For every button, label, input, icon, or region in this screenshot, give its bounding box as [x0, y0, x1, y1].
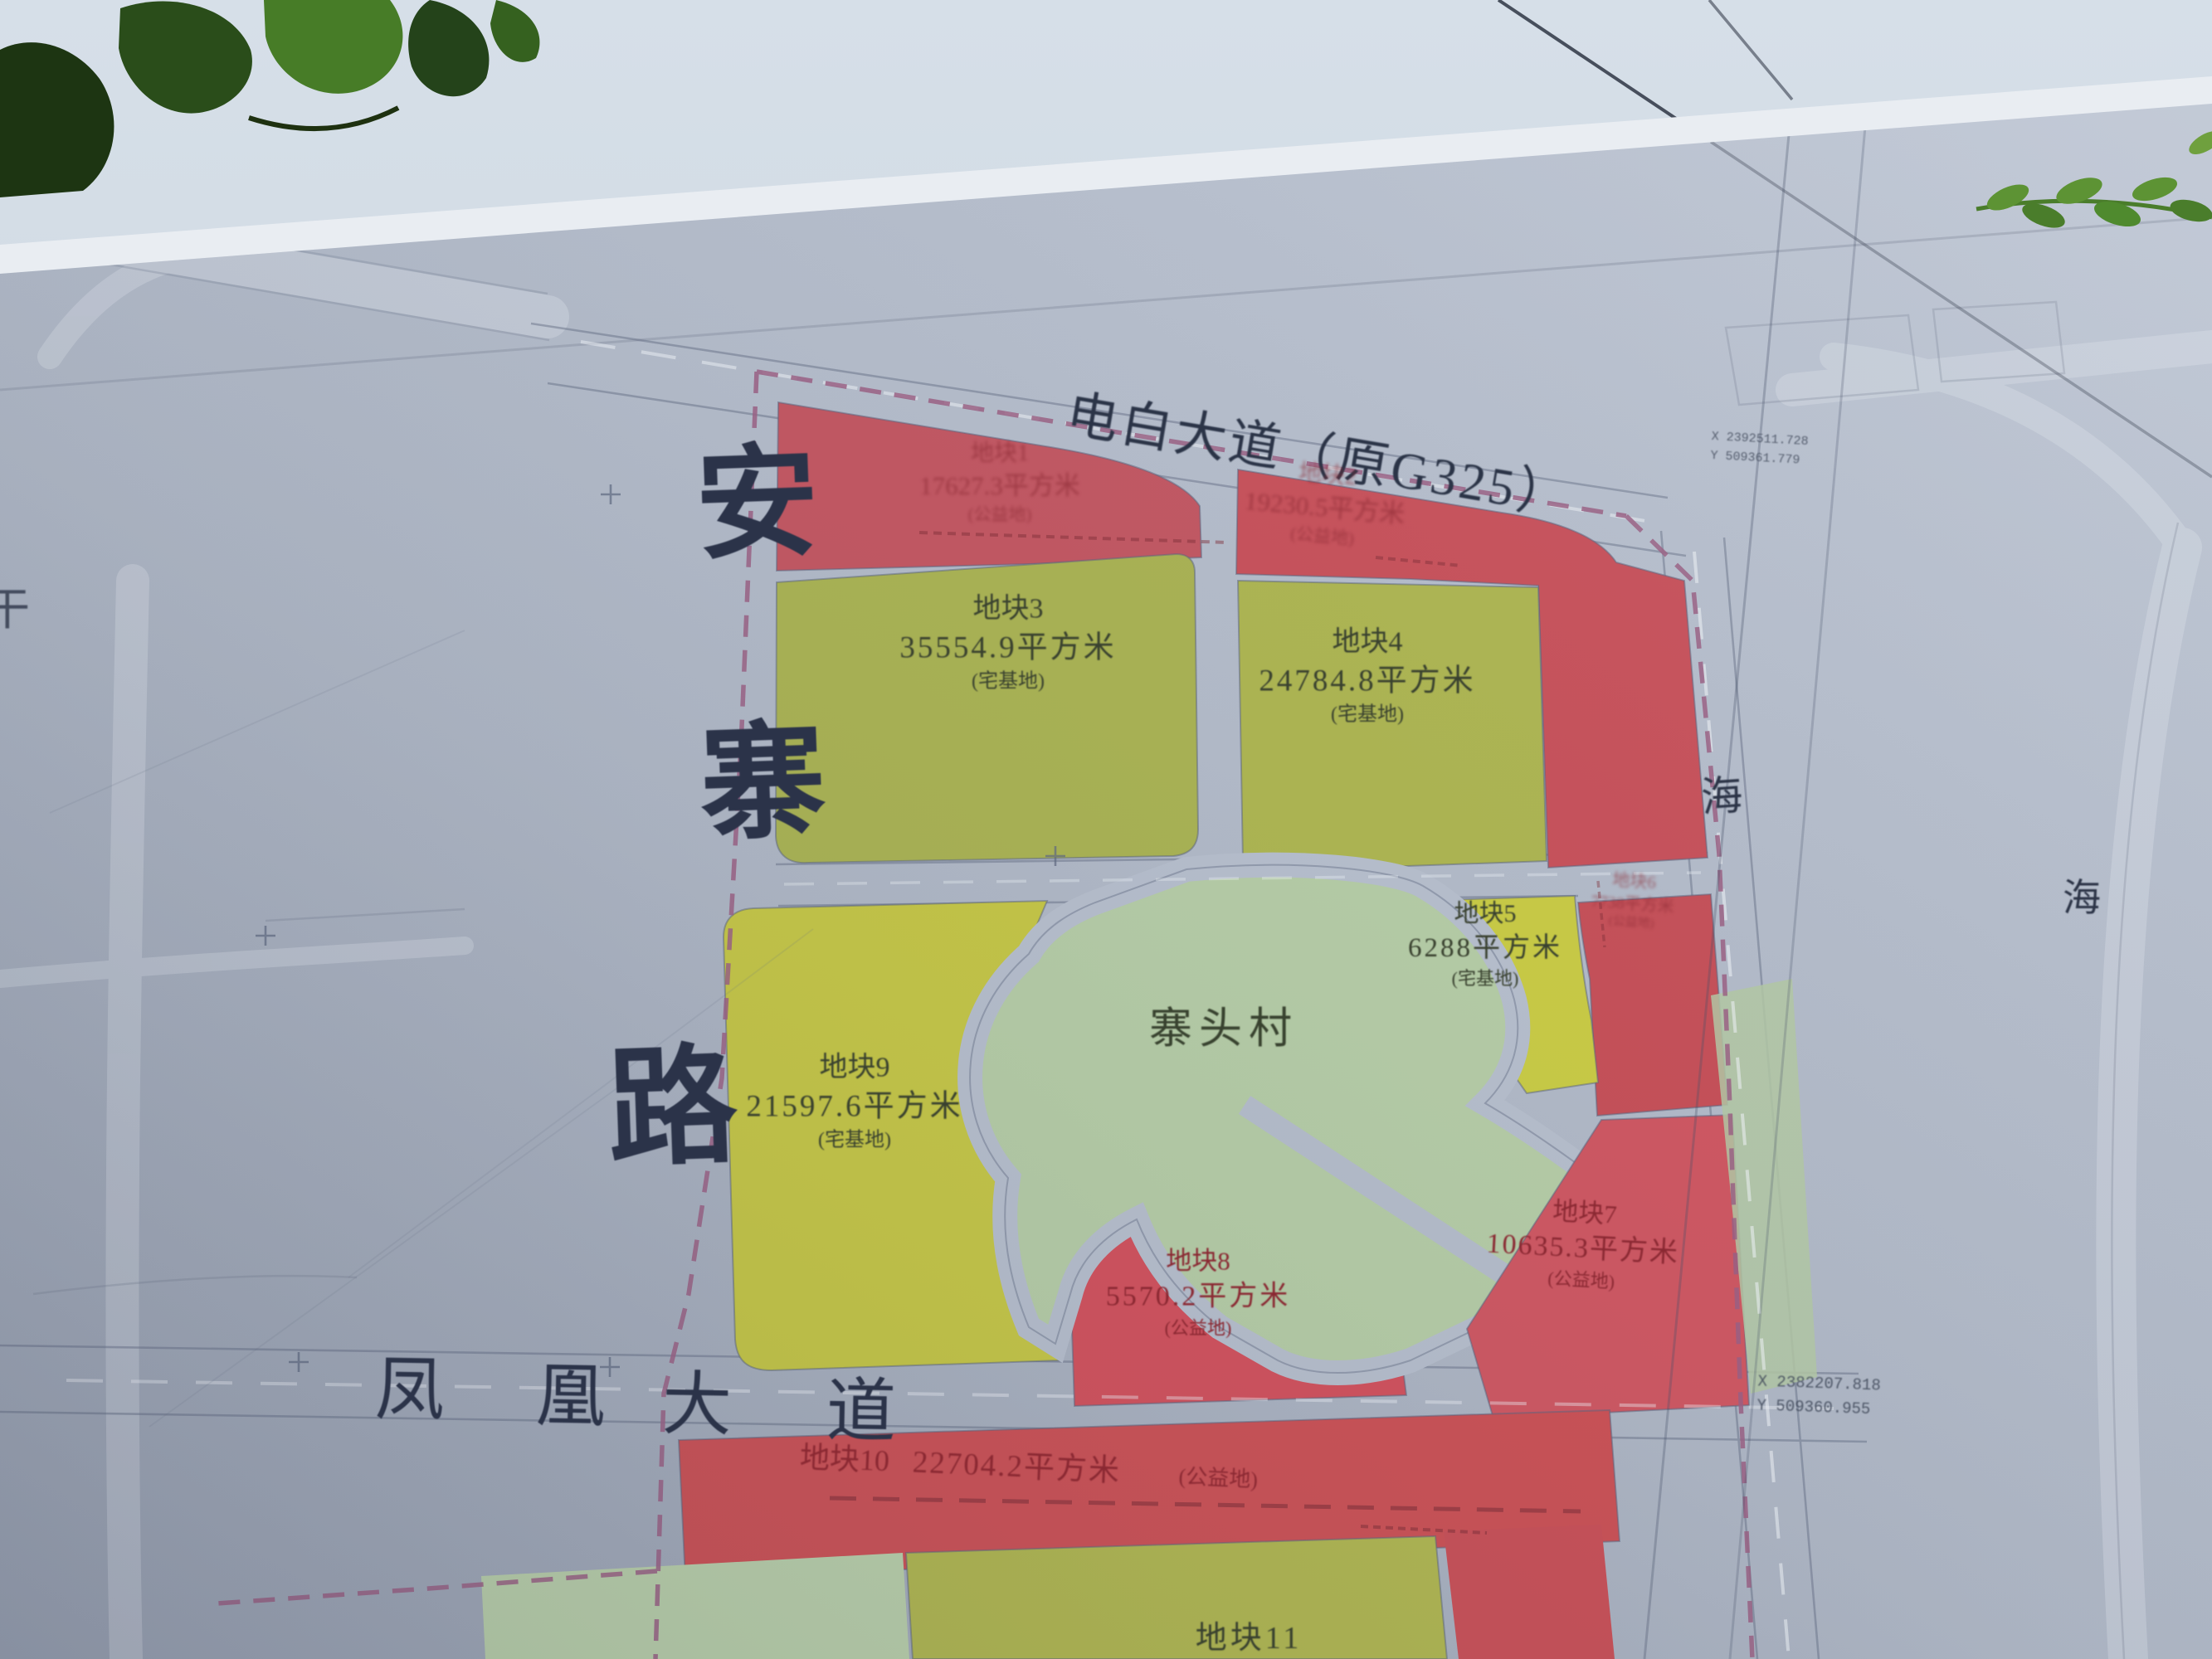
- survey-label-bottom-right: X 2382207.818 Y 509360.955: [1756, 1370, 1881, 1423]
- road-char-hai-outer: 海: [2063, 868, 2101, 922]
- parcel-label-plot8: 地块8 5570.2平方米 (公益地): [1106, 1245, 1291, 1340]
- billboard-content: [0, 0, 2212, 1659]
- edge-char-gan: 干: [0, 572, 30, 638]
- parcel-label-plot9: 地块9 21597.6平方米 (宅基地): [746, 1049, 962, 1153]
- parcel-label-plot1: 地块1 17627.3平方米 (公益地): [919, 439, 1080, 527]
- map-artwork: [0, 0, 2212, 1659]
- road-char-hai-inner: 海: [1699, 761, 1745, 824]
- parcel-label-plot4: 地块4 24784.8平方米 (宅基地): [1259, 624, 1475, 727]
- village-label: 寨头村: [1149, 1002, 1298, 1059]
- road-char-lu: 路: [604, 1000, 740, 1191]
- road-char-da: 大: [661, 1348, 733, 1449]
- billboard-photo-scene: 电白大道（原G325） 安 寨 路 凤 凰 大 道 海 海 干 寨头村 地块1 …: [0, 0, 2212, 1659]
- parcel-label-plot7: 地块7 10635.3平方米 (公益地): [1484, 1192, 1682, 1297]
- parcel-label-plot2: 地块2 19230.5平方米 (公益地): [1241, 454, 1409, 555]
- parcel-label-plot6: 地块6 7738平方米 (公益地): [1590, 868, 1677, 935]
- survey-y-bottom: Y 509360.955: [1756, 1394, 1880, 1423]
- parcel-label-plot11: 地块11: [1196, 1618, 1303, 1659]
- parcel-label-plot5: 地块5 6288平方米 (宅基地): [1408, 898, 1562, 990]
- road-char-feng: 凤: [374, 1333, 446, 1434]
- road-char-an: 安: [692, 401, 821, 583]
- road-char-huang: 凰: [535, 1340, 607, 1441]
- village-name: 寨头村: [1149, 1002, 1298, 1059]
- survey-label-top-right: X 2392511.728 Y 509361.779: [1710, 427, 1809, 471]
- road-char-zhai: 寨: [696, 678, 829, 864]
- parcel-label-plot3: 地块3 35554.9平方米 (宅基地): [899, 591, 1116, 694]
- lighting-overlay: [0, 0, 2212, 1659]
